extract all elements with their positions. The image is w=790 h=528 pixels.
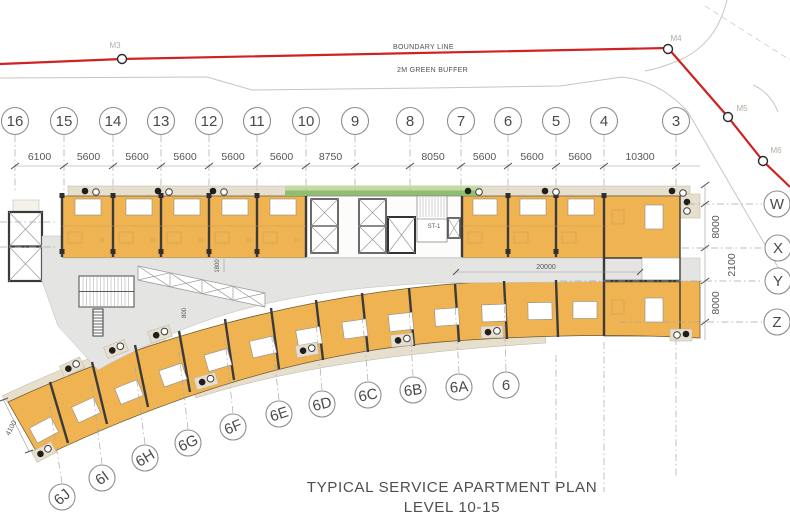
svg-text:X: X — [773, 240, 783, 257]
grid-bubble-6f: 6F — [220, 414, 246, 440]
grid-bubble-6i: 6I — [89, 465, 115, 491]
road-centerline — [705, 6, 790, 60]
boundary-line-label: BOUNDARY LINE — [393, 44, 454, 51]
drawing-title: TYPICAL SERVICE APARTMENT PLAN LEVEL 10-… — [307, 479, 598, 516]
walkway-dim: 800 — [182, 307, 188, 318]
right-edge-balcony-top — [680, 194, 700, 218]
exit-stair — [79, 276, 134, 307]
central-core: ST-1 — [306, 196, 462, 258]
elevator-bank-2 — [359, 199, 386, 253]
grid-bubble-9: 9 — [342, 108, 369, 135]
service-elevator — [388, 217, 415, 253]
grid-bubble-5: 5 — [543, 108, 570, 135]
dim-6-5: 5600 — [520, 151, 544, 163]
grid-bubble-6d: 6D — [309, 391, 335, 417]
grid-bubble-6-low: 6 — [493, 372, 519, 398]
dim-y-z: 8000 — [710, 291, 722, 315]
elevator-bank-1 — [311, 199, 338, 253]
svg-text:13: 13 — [153, 113, 170, 130]
svg-text:Y: Y — [773, 273, 783, 290]
grid-bubble-6b: 6B — [400, 377, 426, 403]
grid-bubble-6j: 6J — [49, 484, 75, 510]
grid-bubble-y: Y — [765, 268, 790, 294]
svg-text:11: 11 — [249, 113, 265, 130]
grid-bubble-w: W — [764, 191, 790, 217]
svg-text:4: 4 — [600, 113, 608, 130]
svg-text:7: 7 — [457, 113, 465, 130]
svg-text:6: 6 — [504, 113, 512, 130]
grid-bubble-11: 11 — [244, 108, 271, 135]
svg-text:6B: 6B — [403, 381, 424, 400]
building: ST-1 — [0, 186, 700, 463]
grid-bubble-8: 8 — [397, 108, 424, 135]
corridor-width-dim: 1800 — [215, 259, 221, 273]
svg-text:12: 12 — [201, 113, 218, 130]
svg-text:8: 8 — [406, 113, 414, 130]
setback-recess — [642, 258, 680, 281]
dim-8-7: 8050 — [421, 151, 445, 163]
boundary-marker-m5: M5 — [724, 104, 749, 122]
grid-bubble-6a: 6A — [446, 374, 472, 400]
stair-label: ST-1 — [428, 224, 441, 230]
title-line-1: TYPICAL SERVICE APARTMENT PLAN — [307, 479, 598, 496]
grid-bubble-z: Z — [764, 309, 790, 335]
dim-7-6: 5600 — [473, 151, 497, 163]
svg-text:3: 3 — [672, 113, 680, 130]
svg-text:10: 10 — [298, 113, 315, 130]
title-line-2: LEVEL 10-15 — [404, 499, 500, 516]
grid-bubble-3: 3 — [663, 108, 690, 135]
dim-16-15: 6100 — [28, 151, 52, 163]
grid-bubble-6g: 6G — [175, 430, 201, 456]
marker-label-m5: M5 — [736, 104, 748, 113]
dim-13-12: 5600 — [173, 151, 197, 163]
west-elevator-core — [9, 200, 42, 281]
green-buffer-label: 2M GREEN BUFFER — [397, 67, 468, 74]
marker-label-m6: M6 — [770, 146, 782, 155]
boundary-marker-m4: M4 — [664, 34, 683, 54]
grid-bubble-10: 10 — [293, 108, 320, 135]
floor-plan-sheet: M3 M4 M5 M6 BOUNDARY LINE 2M GREEN BUFFE… — [0, 0, 790, 528]
svg-text:14: 14 — [105, 113, 122, 130]
svg-text:Z: Z — [772, 314, 781, 331]
marker-label-m4: M4 — [670, 34, 682, 43]
service-ladder-strip — [93, 309, 103, 336]
dim-10-9: 8750 — [319, 151, 343, 163]
green-planter-strip — [285, 186, 482, 197]
svg-text:9: 9 — [351, 113, 359, 130]
road-edge-curve — [645, 0, 727, 71]
grid-bubble-13: 13 — [148, 108, 175, 135]
corridor-length-dim: 20000 — [536, 264, 556, 271]
dim-12-11: 5600 — [221, 151, 245, 163]
grid-bubble-6: 6 — [495, 108, 522, 135]
dim-x-y: 2100 — [726, 253, 738, 277]
dim-5-4: 5600 — [568, 151, 592, 163]
grid-bubble-14: 14 — [100, 108, 127, 135]
svg-text:5: 5 — [552, 113, 560, 130]
dim-11-10: 5600 — [270, 151, 294, 163]
grid-bubble-6e: 6E — [266, 401, 292, 427]
dim-4-3: 10300 — [625, 151, 654, 163]
grid-bubble-6h: 6H — [132, 445, 158, 471]
core-stair: ST-1 — [417, 196, 447, 242]
grid-bubble-15: 15 — [51, 108, 78, 135]
grid-bubble-7: 7 — [448, 108, 475, 135]
grid-bubble-4: 4 — [591, 108, 618, 135]
small-shaft — [448, 218, 460, 238]
grid-bubble-x: X — [765, 235, 790, 261]
svg-text:W: W — [770, 196, 785, 213]
dim-w-x: 8000 — [710, 215, 722, 239]
grid-bubble-6c: 6C — [355, 382, 381, 408]
svg-text:15: 15 — [56, 113, 73, 130]
svg-text:16: 16 — [7, 113, 24, 130]
dim-15-14: 5600 — [77, 151, 101, 163]
marker-label-m3: M3 — [109, 41, 121, 50]
road-corner-curve — [753, 85, 778, 112]
plan-drawing: M3 M4 M5 M6 BOUNDARY LINE 2M GREEN BUFFE… — [0, 0, 790, 528]
grid-bubble-16: 16 — [2, 108, 29, 135]
end-bay-dim: 4100 — [5, 420, 19, 437]
svg-text:6: 6 — [502, 377, 510, 394]
grid-bubble-12: 12 — [196, 108, 223, 135]
svg-text:6A: 6A — [449, 378, 469, 397]
dim-14-13: 5600 — [125, 151, 149, 163]
boundary-marker-m6: M6 — [759, 146, 783, 166]
svg-text:6C: 6C — [357, 385, 379, 405]
